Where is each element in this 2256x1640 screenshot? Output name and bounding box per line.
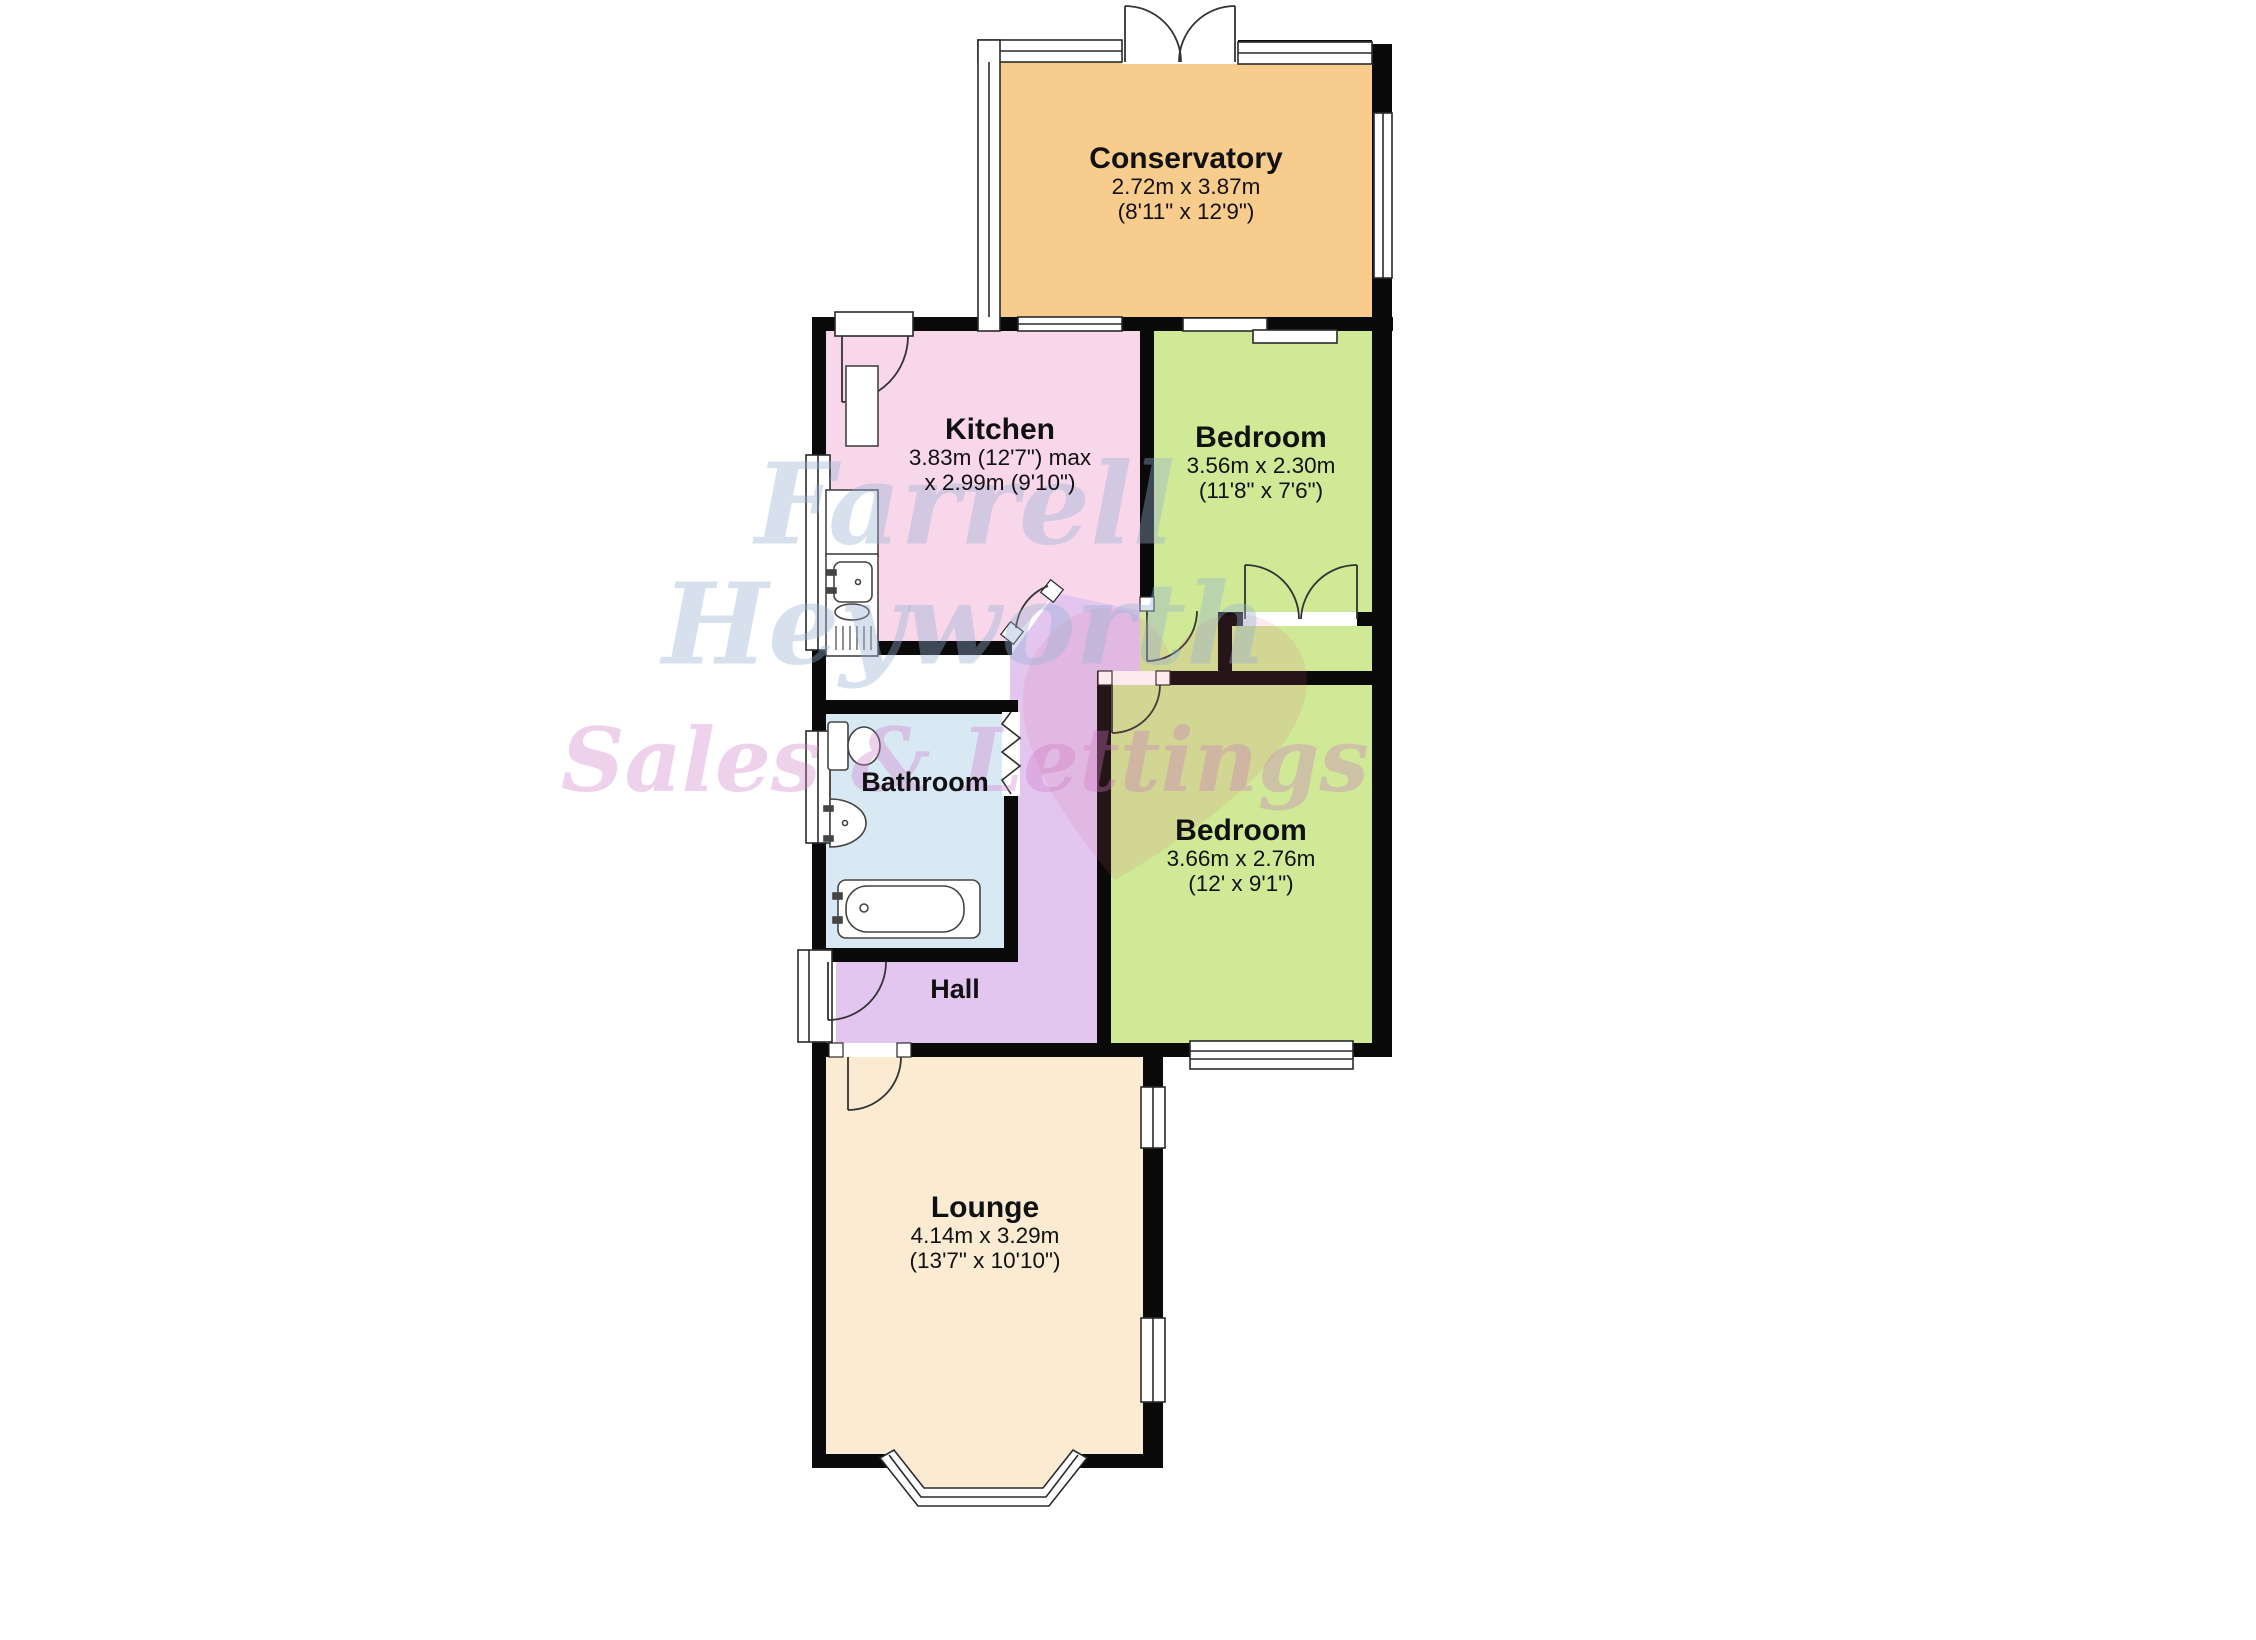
jamb-bedroom1 bbox=[1140, 597, 1154, 611]
label-hall: Hall bbox=[930, 975, 980, 1004]
drain-icon bbox=[856, 580, 861, 585]
opening-lounge-door bbox=[843, 1043, 897, 1057]
kitchen-counter-icon bbox=[826, 490, 878, 556]
kitchen-sink-icon bbox=[834, 562, 872, 602]
wall-lounge-bottom-right bbox=[1077, 1454, 1163, 1468]
kitchen-back-door-frame bbox=[835, 312, 913, 336]
tap-icon bbox=[833, 893, 842, 899]
drain-icon bbox=[860, 904, 868, 912]
wall-bathroom-top bbox=[812, 700, 1018, 714]
label-conservatory: Conservatory 2.72m x 3.87m (8'11" x 12'9… bbox=[1089, 143, 1282, 224]
front-door-frame bbox=[798, 950, 832, 1042]
label-bathroom: Bathroom bbox=[861, 768, 989, 797]
bedroom1-sliding-door-b bbox=[1253, 330, 1337, 343]
wall-kitchen-bedroom1 bbox=[1140, 331, 1154, 611]
kitchen-counter-icon bbox=[846, 366, 878, 446]
wall-lounge-bottom-left bbox=[812, 1454, 887, 1468]
tap-icon bbox=[827, 588, 836, 593]
wall-wardrobe-right bbox=[1357, 612, 1372, 626]
tap-icon bbox=[827, 570, 836, 575]
tap-icon bbox=[824, 806, 833, 811]
drain-icon bbox=[843, 821, 848, 826]
kitchen-basin-icon bbox=[835, 604, 869, 620]
floorplan-drawing bbox=[0, 0, 2256, 1640]
bedroom1-sliding-door-a bbox=[1183, 318, 1267, 331]
label-bedroom-2: Bedroom 3.66m x 2.76m (12' x 9'1") bbox=[1167, 815, 1316, 896]
jamb-lounge-a bbox=[829, 1043, 843, 1057]
label-lounge: Lounge 4.14m x 3.29m (13'7" x 10'10") bbox=[910, 1192, 1061, 1273]
label-kitchen: Kitchen 3.83m (12'7") max x 2.99m (9'10"… bbox=[909, 414, 1091, 495]
toilet-cistern-icon bbox=[828, 722, 848, 770]
jamb-lounge-b bbox=[897, 1043, 911, 1057]
floorplan-canvas: Farrell Heyworth Sales & Lettings Conser… bbox=[0, 0, 2256, 1640]
label-bedroom-1: Bedroom 3.56m x 2.30m (11'8" x 7'6") bbox=[1187, 422, 1336, 503]
bedroom2-window bbox=[1190, 1041, 1353, 1069]
wall-bathroom-bottom bbox=[812, 948, 1018, 962]
tap-icon bbox=[824, 836, 833, 841]
toilet-bowl-icon bbox=[848, 727, 880, 765]
tap-icon bbox=[833, 917, 842, 923]
